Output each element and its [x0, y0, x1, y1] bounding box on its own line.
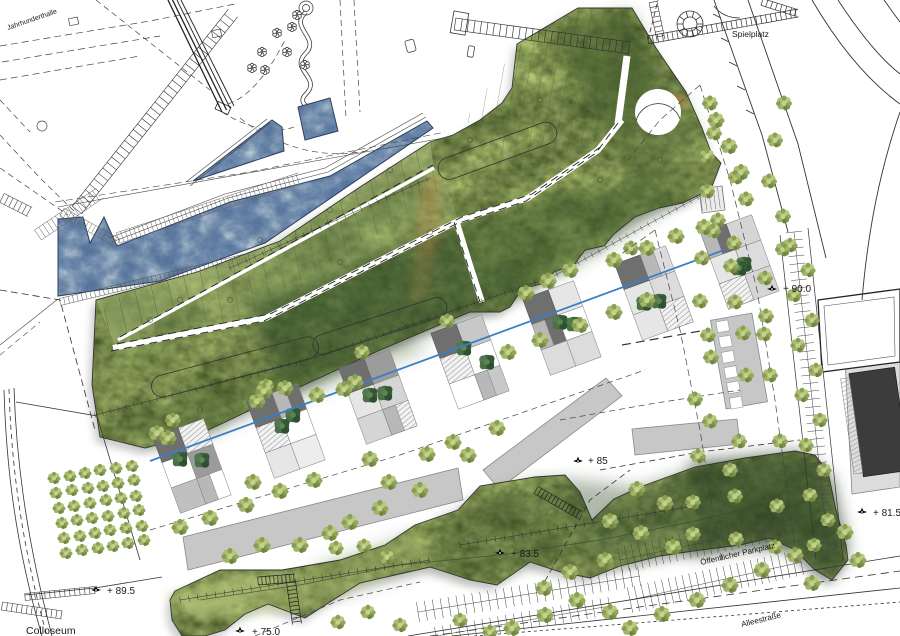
- svg-text:+ 90.0: + 90.0: [783, 284, 812, 295]
- svg-text:+ 85: + 85: [588, 456, 608, 467]
- svg-text:Spielplatz: Spielplatz: [732, 29, 769, 39]
- svg-text:Colloseum: Colloseum: [26, 625, 76, 636]
- svg-text:+ 75.0: + 75.0: [252, 627, 281, 636]
- svg-text:+ 83.5: + 83.5: [511, 549, 540, 560]
- svg-text:+ 89.5: + 89.5: [107, 586, 136, 597]
- svg-text:+ 81.5: + 81.5: [873, 508, 900, 519]
